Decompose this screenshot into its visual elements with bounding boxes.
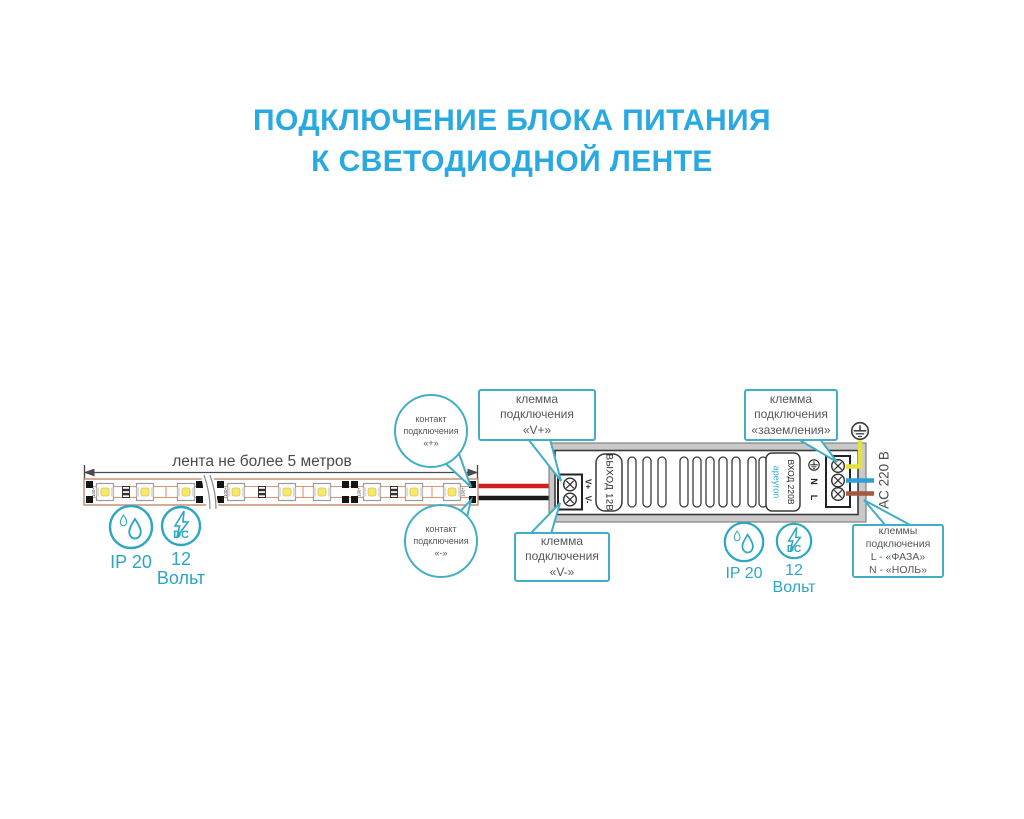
ip20-label: IP 20 bbox=[725, 566, 762, 583]
pad-marking: 100+ bbox=[91, 487, 96, 497]
dimension-label: лента не более 5 метров bbox=[172, 453, 352, 470]
voltage-unit: Вольт bbox=[157, 569, 205, 588]
ac-220-label: AC 220 В bbox=[877, 451, 892, 509]
pad-marking: 100+ bbox=[461, 487, 466, 497]
screw-l bbox=[832, 488, 845, 501]
callout-terminal-vplus: клемма подключения «V+» bbox=[478, 389, 596, 441]
callout-contact-plus-text: контакт подключения «+» bbox=[403, 413, 458, 449]
page: ПОДКЛЮЧЕНИЕ БЛОКА ПИТАНИЯ К СВЕТОДИОДНОЙ… bbox=[0, 0, 1024, 819]
voltage-value: 12 bbox=[171, 550, 191, 569]
label-vminus: V- bbox=[584, 496, 593, 504]
callout-terminal-vminus: клемма подключения «V-» bbox=[514, 532, 610, 582]
screw-n bbox=[832, 474, 845, 487]
earth-symbol-small bbox=[809, 460, 819, 470]
label-l: L bbox=[809, 495, 819, 501]
callout-terminal-ground: клемма подключения «заземления» bbox=[744, 389, 838, 441]
callout-terminal-mains: клеммы подключения L - «ФАЗА» N - «НОЛЬ» bbox=[852, 524, 944, 578]
dc-text: DC bbox=[173, 529, 189, 541]
callout-terminal-vminus-text: клемма подключения «V-» bbox=[525, 534, 599, 580]
dc-lightning-icon: DC bbox=[160, 505, 202, 547]
pad-marking: 100+ bbox=[357, 487, 362, 497]
pad-marking: 100+ bbox=[223, 487, 228, 497]
badge-12v-right: DC 12 Вольт bbox=[759, 522, 829, 597]
screw-ground bbox=[832, 460, 845, 473]
pointer-vminus bbox=[530, 503, 560, 534]
callout-contact-minus: контакт подключения «-» bbox=[404, 504, 478, 578]
screw-vminus bbox=[564, 493, 577, 506]
psu-output-label: ВЫХОД 12В bbox=[604, 454, 615, 512]
psu-brand: apeyron bbox=[772, 466, 782, 499]
callout-contact-minus-text: контакт подключения «-» bbox=[413, 523, 468, 559]
callout-terminal-ground-text: клемма подключения «заземления» bbox=[751, 392, 830, 438]
earth-symbol bbox=[852, 423, 869, 440]
dc-lightning-icon: DC bbox=[775, 522, 813, 560]
callout-terminal-mains-text: клеммы подключения L - «ФАЗА» N - «НОЛЬ» bbox=[866, 525, 931, 578]
power-supply: V+ V- ВЫХОД 12В apeyron ВХОД 220В bbox=[549, 443, 866, 522]
screw-vplus bbox=[564, 478, 577, 491]
psu-input-label: ВХОД 220В bbox=[786, 459, 796, 504]
badge-12v-left: DC 12 Вольт bbox=[146, 505, 216, 588]
label-vplus: V+ bbox=[584, 479, 593, 489]
voltage-unit: Вольт bbox=[773, 580, 816, 597]
dc-text: DC bbox=[787, 544, 801, 555]
callout-contact-plus: контакт подключения «+» bbox=[394, 394, 468, 468]
callout-terminal-vplus-text: клемма подключения «V+» bbox=[500, 392, 574, 438]
voltage-value: 12 bbox=[785, 563, 803, 580]
label-n: N bbox=[809, 478, 819, 485]
